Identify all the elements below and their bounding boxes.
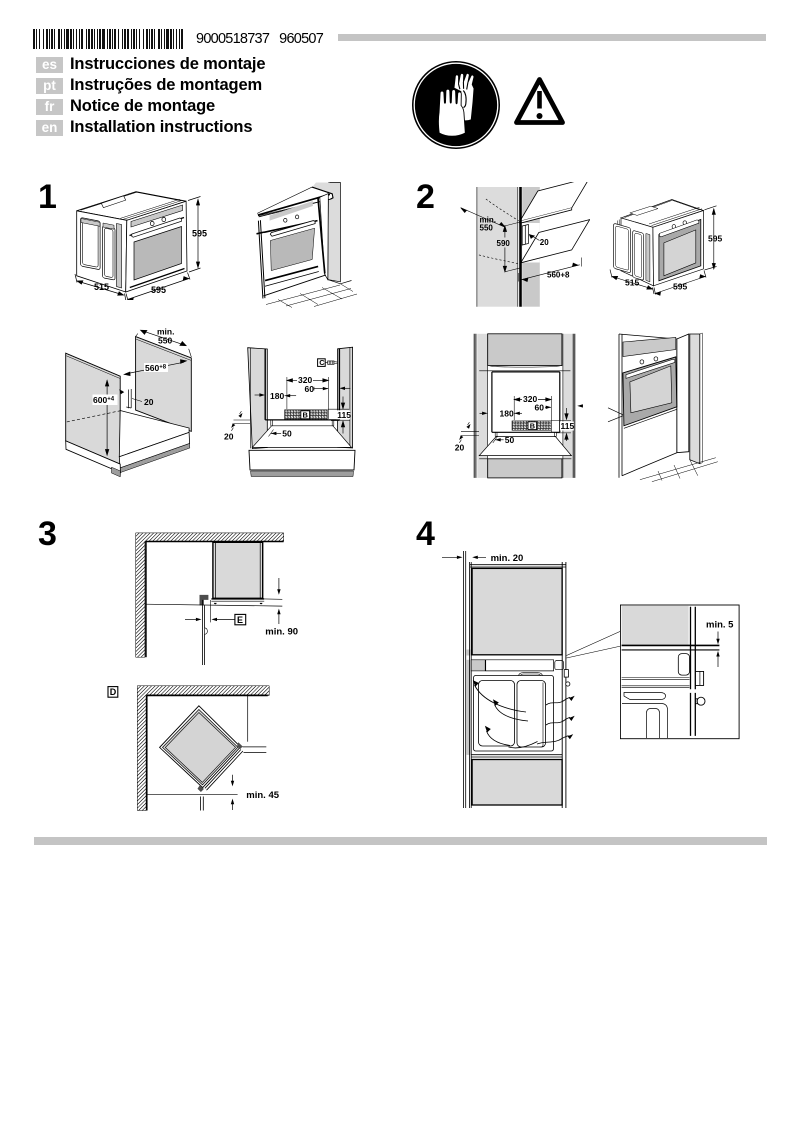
svg-text:595: 595 [192,229,207,239]
svg-text:115: 115 [337,410,351,420]
svg-text:B: B [530,421,535,430]
svg-text:590: 590 [497,239,511,248]
svg-text:560+8: 560+8 [547,271,570,280]
svg-text:20: 20 [144,397,154,407]
svg-text:550: 550 [158,336,172,346]
svg-text:20: 20 [455,443,465,453]
svg-text:min. 90: min. 90 [265,627,298,638]
svg-text:515: 515 [94,282,109,292]
svg-text:60: 60 [535,403,545,413]
svg-text:50: 50 [282,429,292,439]
svg-text:20: 20 [224,432,234,442]
svg-text:60: 60 [305,384,315,394]
svg-text:595: 595 [151,285,166,295]
svg-text:515: 515 [625,278,639,288]
svg-text:595: 595 [708,234,722,244]
svg-text:550: 550 [480,224,494,233]
svg-text:180: 180 [500,409,514,419]
svg-text:595: 595 [673,282,687,292]
svg-text:min. 5: min. 5 [706,620,734,631]
svg-text:C: C [319,358,325,367]
svg-text:115: 115 [561,421,575,431]
svg-text:min. 45: min. 45 [246,790,279,801]
svg-text:50: 50 [505,435,515,445]
svg-text:D: D [110,687,117,697]
svg-text:180: 180 [270,391,284,401]
svg-text:min. 20: min. 20 [491,553,524,564]
svg-text:E: E [237,615,243,625]
svg-text:B: B [303,411,309,420]
svg-text:20: 20 [540,238,549,247]
